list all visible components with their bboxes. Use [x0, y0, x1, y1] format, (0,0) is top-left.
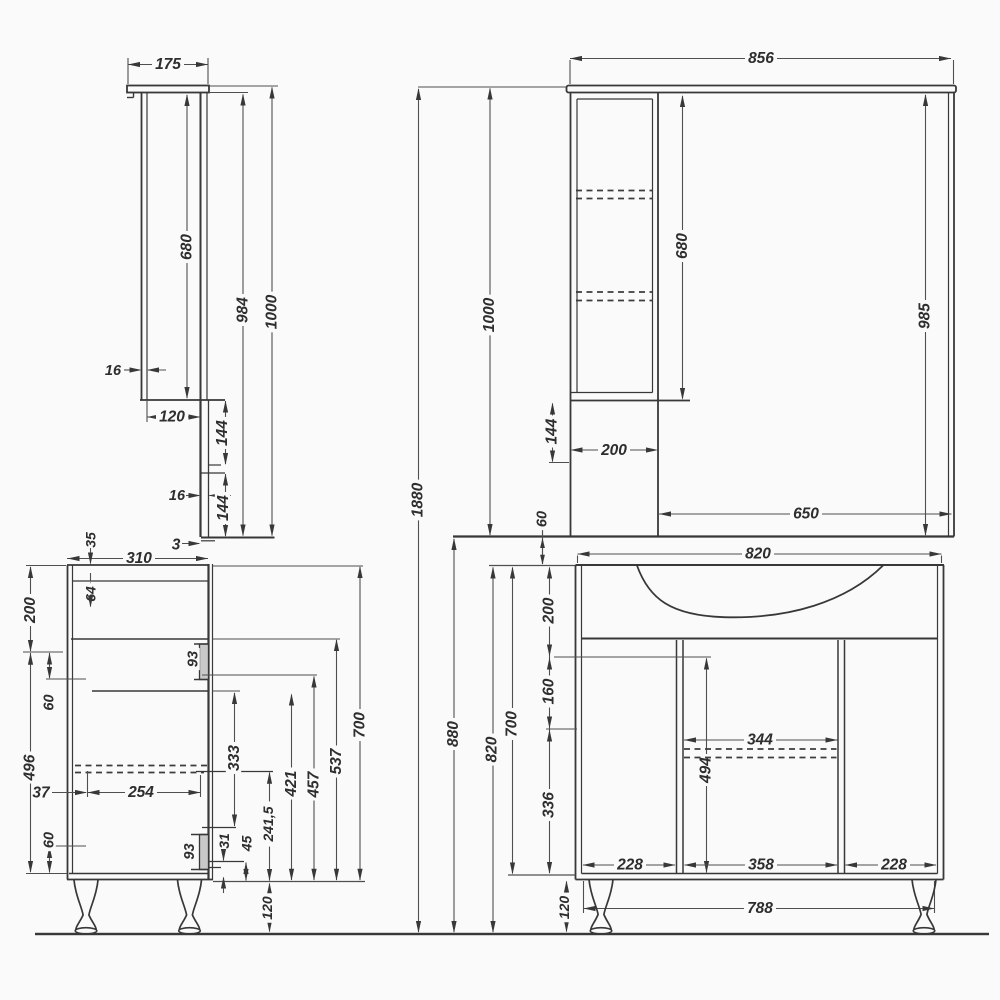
svg-text:93: 93 — [186, 651, 202, 667]
svg-text:120: 120 — [159, 408, 185, 425]
svg-text:60: 60 — [42, 694, 58, 710]
svg-text:1000: 1000 — [481, 297, 498, 332]
svg-text:228: 228 — [880, 856, 907, 873]
svg-text:200: 200 — [540, 597, 557, 624]
svg-text:16: 16 — [105, 363, 122, 379]
svg-text:358: 358 — [748, 856, 774, 873]
svg-text:680: 680 — [674, 233, 691, 259]
svg-text:120: 120 — [259, 896, 275, 920]
svg-text:93: 93 — [182, 843, 198, 859]
svg-text:45: 45 — [238, 836, 254, 853]
svg-text:496: 496 — [21, 754, 38, 781]
svg-text:1880: 1880 — [409, 482, 426, 517]
svg-text:700: 700 — [503, 711, 520, 737]
svg-text:60: 60 — [42, 832, 58, 848]
svg-text:144: 144 — [543, 418, 560, 444]
svg-text:700: 700 — [351, 712, 368, 738]
svg-text:144: 144 — [215, 495, 232, 521]
svg-text:788: 788 — [747, 900, 773, 917]
svg-text:228: 228 — [616, 856, 643, 873]
svg-text:820: 820 — [745, 545, 771, 562]
svg-text:160: 160 — [540, 678, 557, 704]
svg-text:200: 200 — [22, 597, 39, 624]
svg-text:421: 421 — [283, 771, 300, 798]
svg-text:16: 16 — [169, 488, 186, 504]
svg-text:985: 985 — [916, 303, 933, 329]
svg-text:650: 650 — [793, 505, 819, 522]
svg-text:175: 175 — [155, 56, 181, 73]
svg-text:344: 344 — [747, 731, 773, 748]
svg-text:200: 200 — [600, 442, 627, 459]
svg-text:984: 984 — [234, 297, 251, 323]
svg-text:336: 336 — [540, 792, 557, 818]
svg-text:31: 31 — [216, 833, 232, 849]
svg-text:120: 120 — [556, 896, 572, 920]
svg-text:254: 254 — [127, 784, 154, 801]
svg-text:144: 144 — [214, 420, 231, 446]
svg-text:37: 37 — [32, 784, 51, 801]
svg-text:880: 880 — [445, 721, 462, 747]
svg-text:494: 494 — [697, 757, 714, 784]
svg-text:856: 856 — [748, 50, 774, 67]
svg-text:537: 537 — [328, 747, 345, 774]
svg-text:457: 457 — [305, 770, 322, 798]
svg-text:680: 680 — [178, 234, 195, 260]
svg-text:60: 60 — [535, 511, 551, 527]
svg-text:333: 333 — [226, 745, 243, 771]
svg-text:3: 3 — [172, 536, 181, 553]
svg-text:1000: 1000 — [263, 294, 280, 329]
svg-text:241,5: 241,5 — [260, 806, 276, 842]
svg-text:35: 35 — [82, 532, 98, 548]
svg-text:820: 820 — [483, 736, 500, 762]
